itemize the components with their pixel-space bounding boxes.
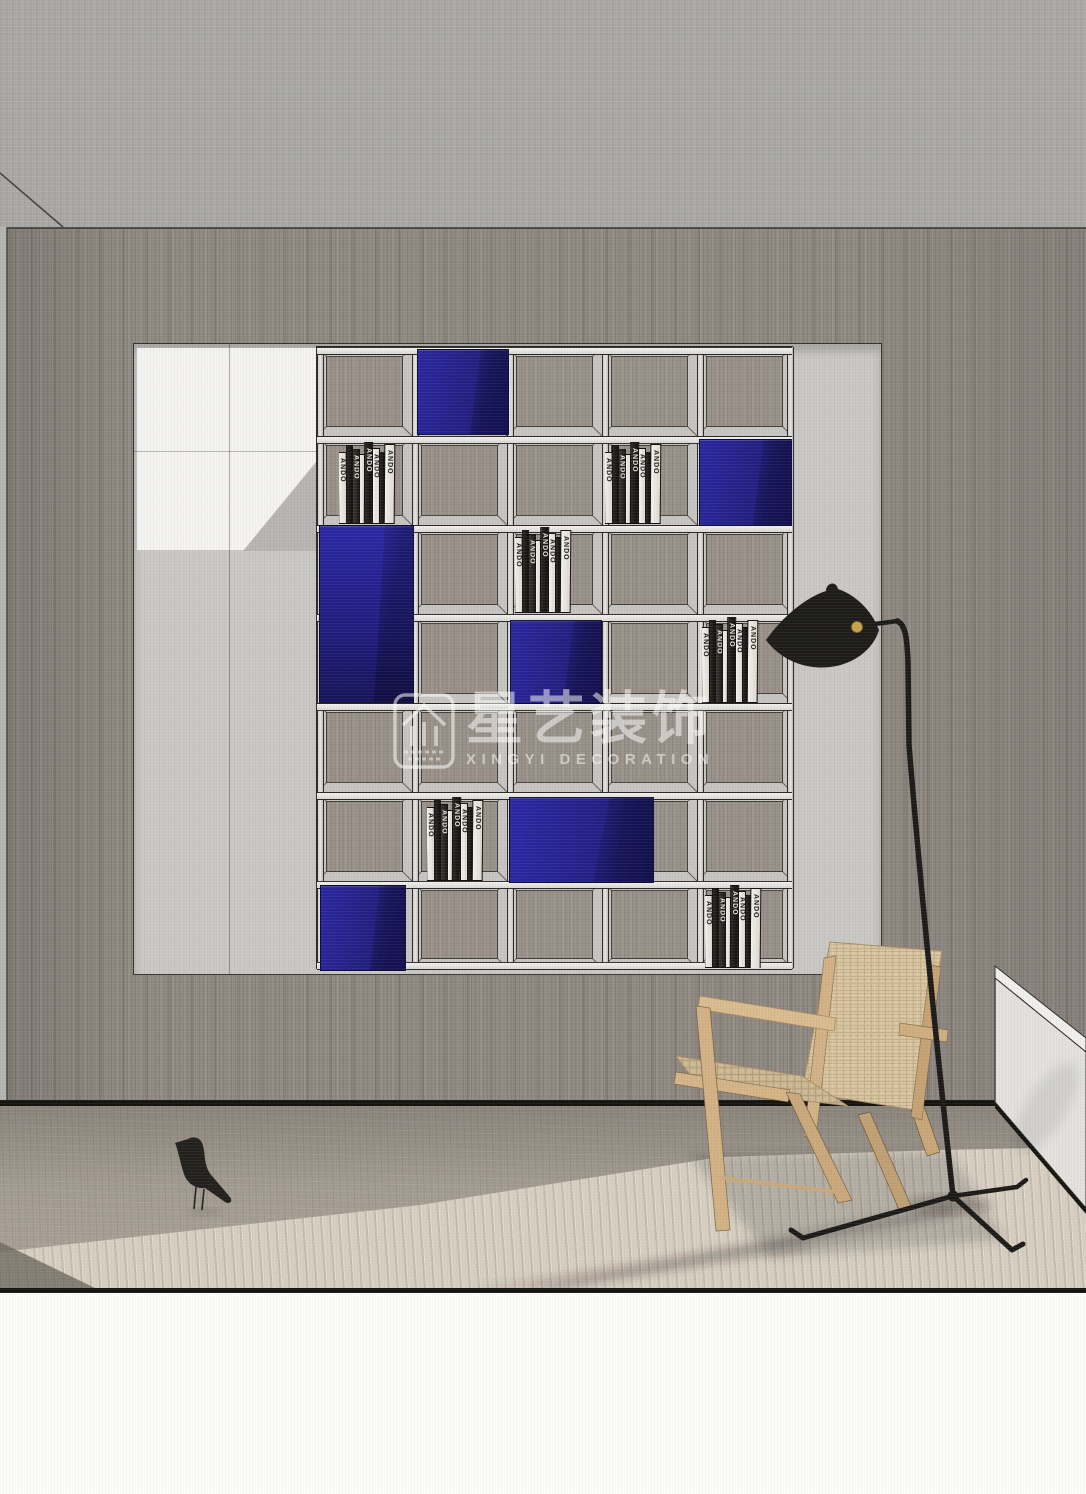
blue-box: [699, 439, 792, 526]
shelf-cell: [602, 525, 697, 614]
shelf-line-extension: [134, 451, 316, 452]
book-spine-label: ANDO: [652, 450, 660, 523]
cell-depth-lines: [412, 881, 507, 968]
blue-box: [510, 620, 602, 704]
book-cluster: ANDOANDOANDOANDOANDO: [339, 442, 409, 524]
blue-box: [509, 797, 654, 883]
cell-depth-lines: [507, 881, 602, 968]
shelf-cell: [412, 881, 507, 968]
cell-depth-lines: [697, 703, 792, 792]
book-spine-label: ANDO: [752, 893, 760, 967]
cell-depth-lines: [317, 347, 412, 436]
book-cluster: ANDOANDOANDOANDOANDO: [515, 527, 587, 613]
shelf-cell: [412, 703, 507, 792]
book-spine-label: ANDO: [386, 450, 394, 523]
book-spine: ANDO: [560, 530, 572, 613]
cell-depth-lines: [317, 703, 412, 792]
book-cluster: ANDOANDOANDOANDOANDO: [427, 797, 502, 881]
book-spine-label: ANDO: [474, 806, 482, 881]
cell-depth-lines: [697, 525, 792, 614]
shelf-cell: [602, 347, 697, 436]
book-cluster: ANDOANDOANDOANDOANDO: [605, 442, 667, 524]
shelf-cell: [697, 703, 792, 792]
blue-box: [417, 349, 509, 435]
shelf-cell: [507, 881, 602, 968]
cell-depth-lines: [507, 436, 602, 525]
cell-depth-lines: [602, 881, 697, 968]
grid-bookshelf: ANDOANDOANDOANDOANDOANDOANDOANDOANDOANDO…: [316, 346, 793, 969]
book-spine: ANDO: [650, 444, 662, 524]
cell-depth-lines: [412, 525, 507, 614]
cell-depth-lines: [602, 347, 697, 436]
wood-floor: [0, 1104, 1086, 1288]
book-spine: ANDO: [384, 444, 396, 524]
shelf-cell: [412, 525, 507, 614]
shelf-cell: [412, 614, 507, 703]
ceiling: [0, 0, 1086, 227]
book-cluster: ANDOANDOANDOANDOANDO: [702, 617, 780, 703]
cell-depth-lines: [507, 347, 602, 436]
shelf-cell: [697, 347, 792, 436]
cell-depth-lines: [412, 703, 507, 792]
book-spine: ANDO: [747, 620, 759, 703]
shelf-board: [317, 703, 792, 711]
blue-box: [319, 525, 414, 703]
cell-depth-lines: [412, 436, 507, 525]
shelf-cell: [317, 792, 412, 881]
shelf-cell: [412, 436, 507, 525]
shelf-cell: [697, 792, 792, 881]
cell-depth-lines: [602, 614, 697, 703]
shelf-cell: [507, 436, 602, 525]
shelf-cell: [507, 703, 602, 792]
panel-joint-line: [229, 344, 230, 974]
wall-niche: ANDOANDOANDOANDOANDOANDOANDOANDOANDOANDO…: [133, 343, 882, 975]
book-spine: ANDO: [472, 799, 484, 881]
bottom-margin: [0, 1288, 1086, 1494]
shelf-cell: [602, 614, 697, 703]
shelf-cell: [602, 881, 697, 968]
book-cluster: ANDOANDOANDOANDOANDO: [705, 885, 780, 968]
book-spine: ANDO: [750, 887, 762, 968]
cell-depth-lines: [317, 792, 412, 881]
book-spine-label: ANDO: [749, 626, 757, 702]
wall-left-edge: [0, 227, 7, 1104]
book-spine-label: ANDO: [562, 536, 570, 612]
shelf-cell: [697, 525, 792, 614]
shelf-cell: [317, 703, 412, 792]
shelf-cell: [602, 703, 697, 792]
blue-box: [320, 885, 406, 971]
shelf-cell: [317, 347, 412, 436]
shelf-board: [317, 347, 792, 355]
cell-depth-lines: [507, 703, 602, 792]
cell-depth-lines: [602, 525, 697, 614]
cell-depth-lines: [697, 347, 792, 436]
cell-depth-lines: [412, 614, 507, 703]
cell-depth-lines: [602, 703, 697, 792]
cell-depth-lines: [697, 792, 792, 881]
interior-render-scene: ANDOANDOANDOANDOANDOANDOANDOANDOANDOANDO…: [0, 0, 1086, 1494]
shelf-cell: [507, 347, 602, 436]
